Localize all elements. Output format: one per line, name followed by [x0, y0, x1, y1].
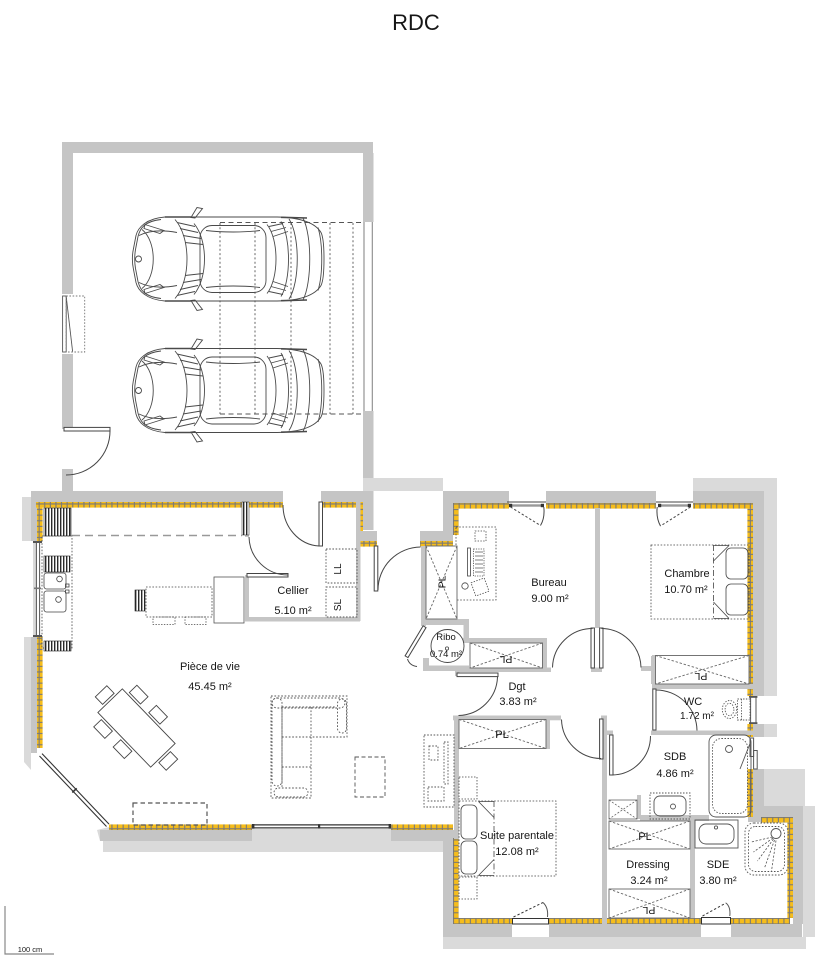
svg-text:PL: PL — [694, 670, 707, 682]
svg-text:PL: PL — [495, 729, 508, 741]
svg-text:LL: LL — [333, 563, 344, 575]
svg-text:Ribo: Ribo — [436, 632, 456, 643]
svg-text:WC: WC — [684, 696, 702, 708]
svg-text:PL: PL — [642, 904, 655, 916]
svg-text:Pièce de vie: Pièce de vie — [180, 661, 240, 673]
svg-text:Chambre: Chambre — [664, 568, 709, 580]
svg-text:Dgt: Dgt — [508, 681, 525, 693]
svg-text:PL: PL — [638, 831, 651, 843]
svg-text:SDE: SDE — [707, 859, 730, 871]
svg-text:SDB: SDB — [664, 751, 687, 763]
svg-text:Dressing: Dressing — [626, 859, 669, 871]
svg-text:3.80 m²: 3.80 m² — [699, 875, 737, 887]
svg-text:4.86 m²: 4.86 m² — [656, 768, 694, 780]
svg-text:0.74 m²: 0.74 m² — [430, 649, 462, 660]
svg-text:45.45 m²: 45.45 m² — [188, 681, 232, 693]
svg-text:RDC: RDC — [392, 10, 440, 35]
svg-text:PL: PL — [499, 653, 512, 665]
svg-text:Cellier: Cellier — [277, 585, 309, 597]
svg-text:10.70 m²: 10.70 m² — [664, 584, 708, 596]
svg-text:5.10 m²: 5.10 m² — [274, 605, 312, 617]
svg-text:Suite parentale: Suite parentale — [480, 830, 554, 842]
svg-text:Bureau: Bureau — [531, 577, 566, 589]
svg-text:9.00 m²: 9.00 m² — [531, 593, 569, 605]
svg-text:1.72 m²: 1.72 m² — [680, 711, 715, 722]
svg-text:3.24 m²: 3.24 m² — [630, 875, 668, 887]
svg-text:3.83 m²: 3.83 m² — [499, 696, 537, 708]
svg-text:SL: SL — [333, 598, 344, 611]
svg-text:12.08 m²: 12.08 m² — [495, 846, 539, 858]
svg-text:100 cm: 100 cm — [18, 945, 43, 954]
svg-text:PL: PL — [437, 575, 449, 588]
